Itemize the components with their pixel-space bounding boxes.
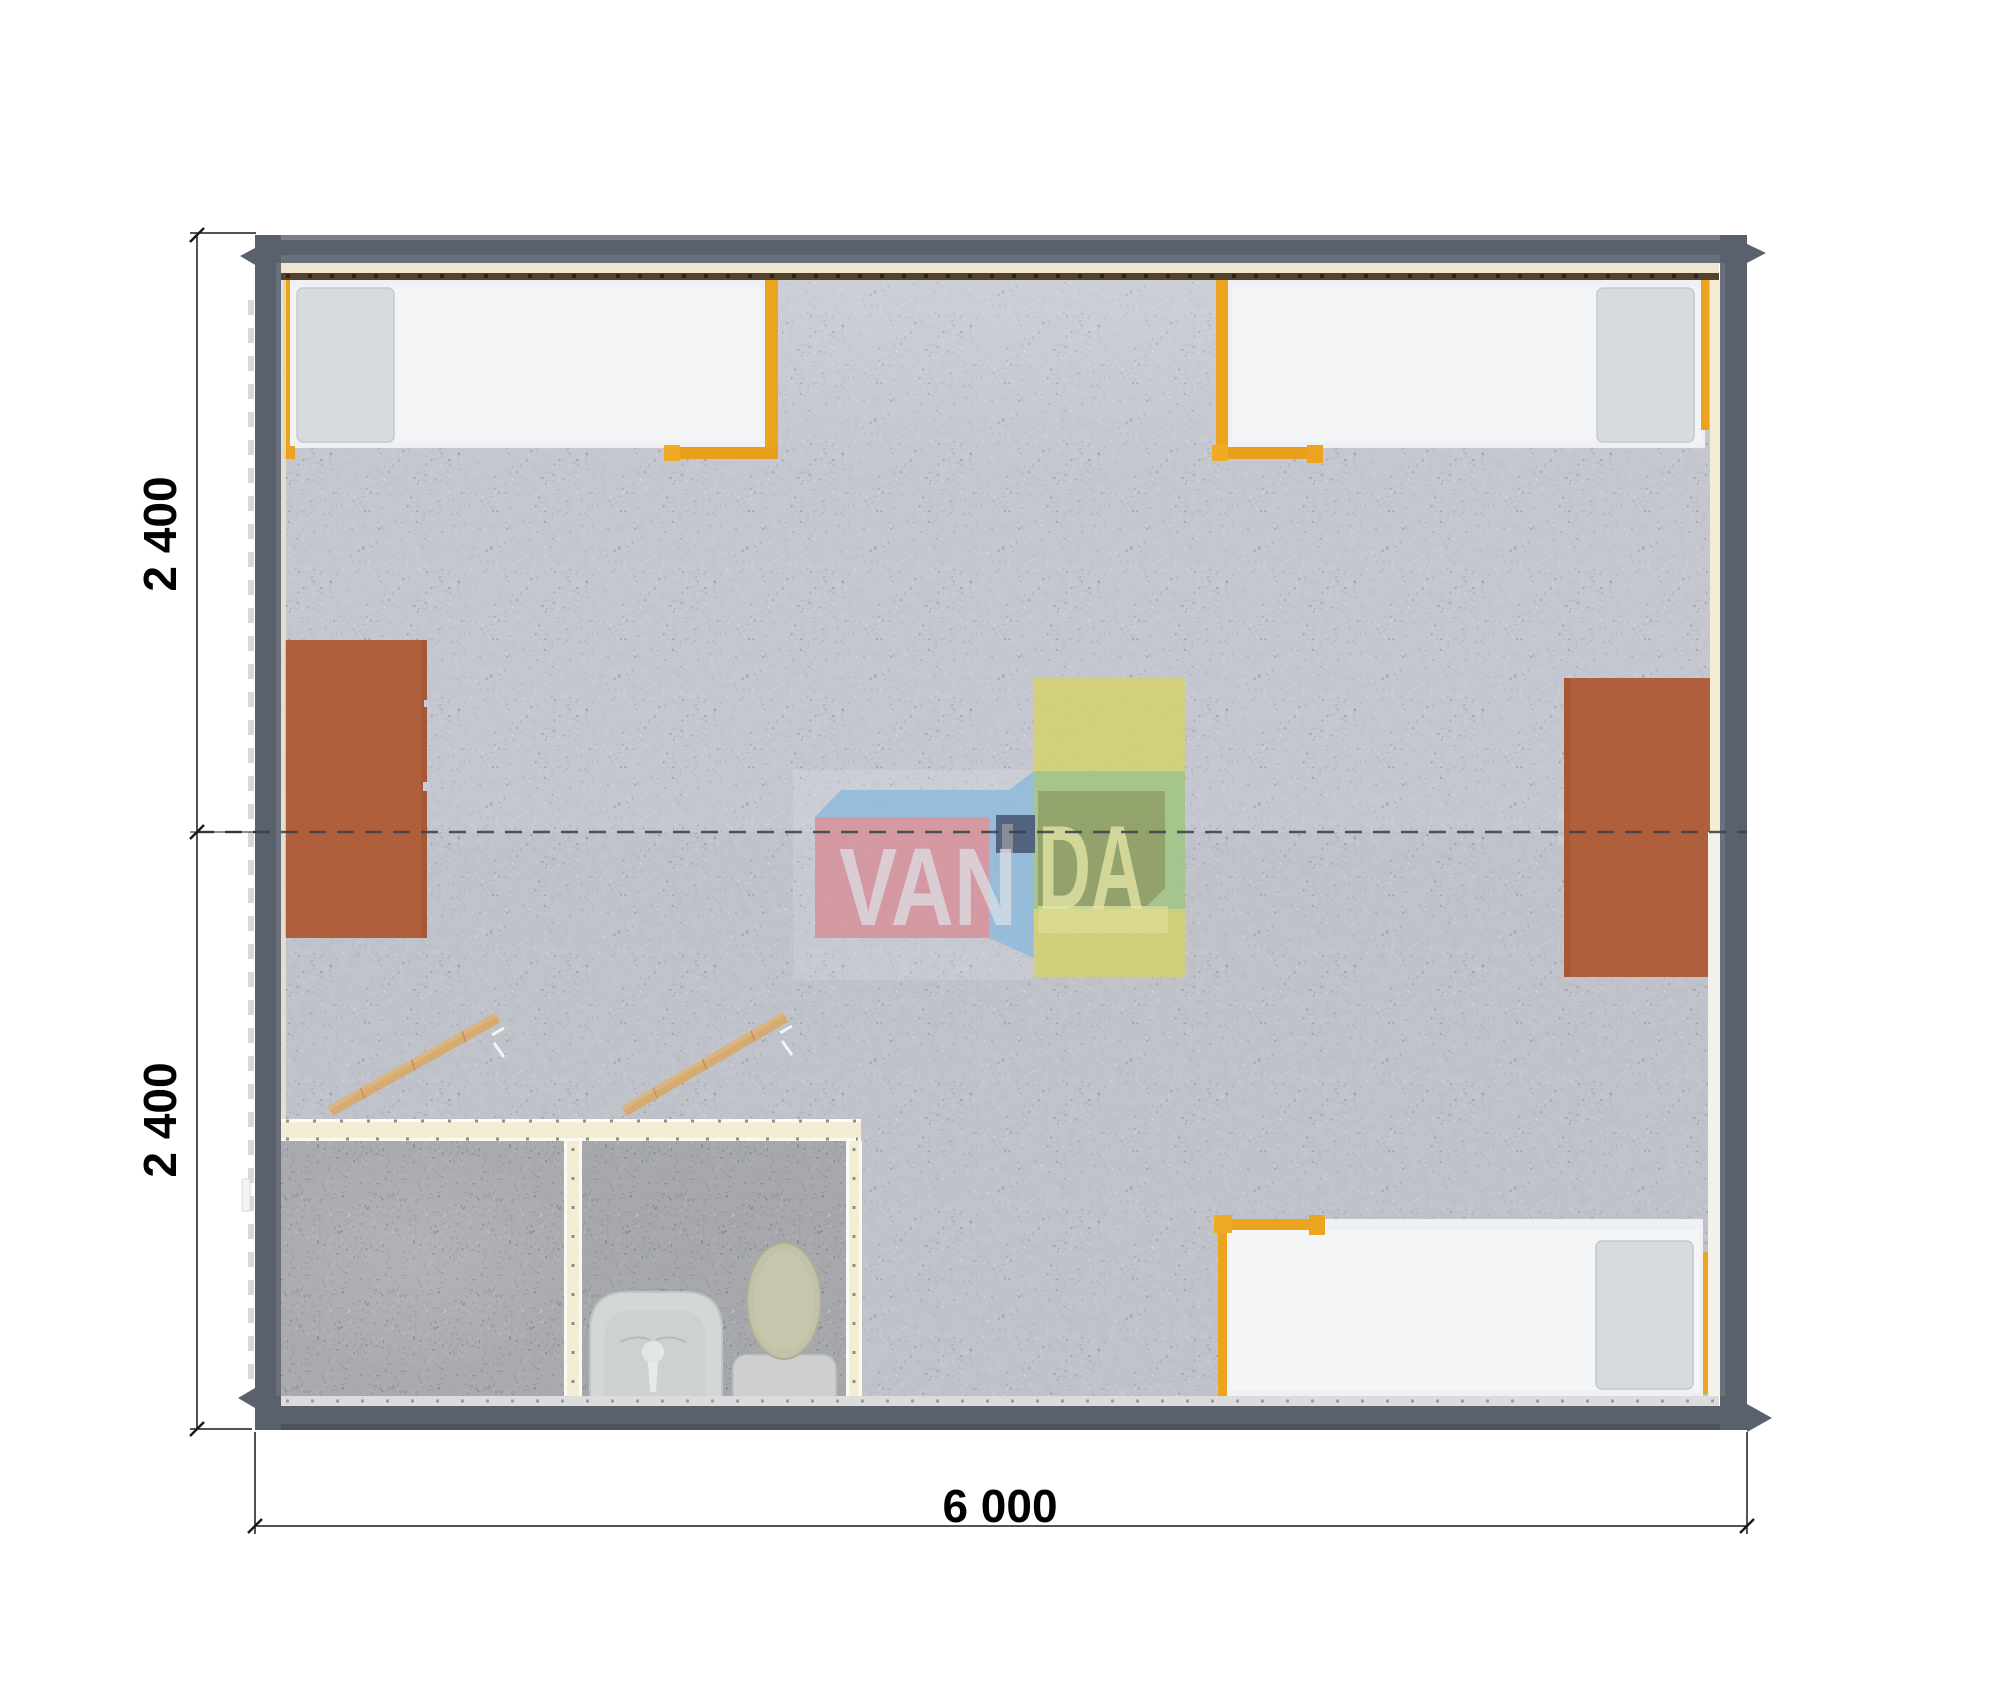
svg-text:2 400: 2 400 bbox=[134, 1062, 186, 1177]
svg-text:DA: DA bbox=[1038, 801, 1144, 935]
svg-text:VAN: VAN bbox=[839, 826, 1017, 949]
svg-text:6 000: 6 000 bbox=[942, 1480, 1057, 1532]
svg-text:2 400: 2 400 bbox=[134, 476, 186, 591]
